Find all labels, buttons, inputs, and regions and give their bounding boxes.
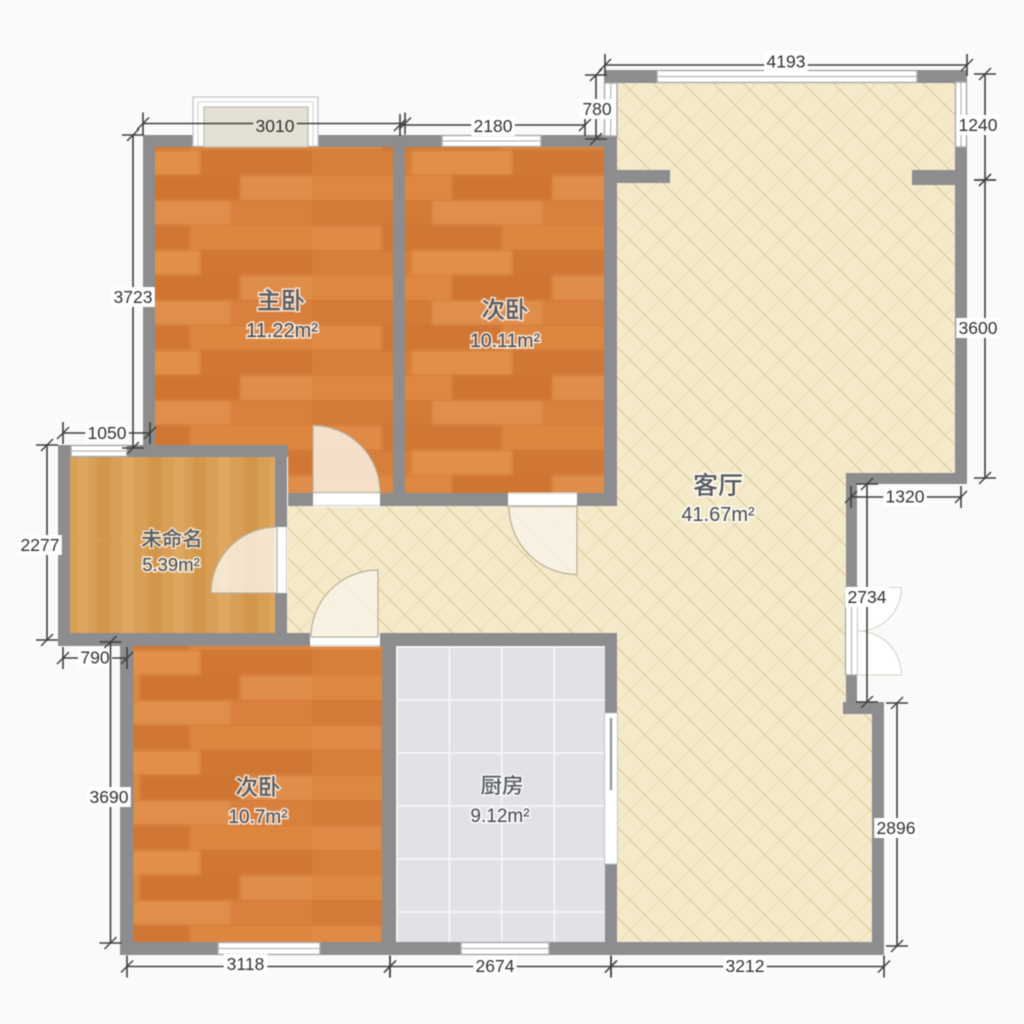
- svg-text:2277: 2277: [21, 535, 60, 555]
- svg-text:790: 790: [80, 648, 109, 668]
- svg-text:4193: 4193: [767, 52, 806, 72]
- svg-text:3212: 3212: [726, 956, 765, 976]
- svg-text:9.12m²: 9.12m²: [470, 806, 529, 827]
- svg-text:780: 780: [582, 99, 611, 119]
- svg-text:11.22m²: 11.22m²: [246, 320, 318, 342]
- svg-text:3010: 3010: [256, 116, 295, 136]
- svg-text:2674: 2674: [476, 956, 515, 976]
- svg-text:3118: 3118: [227, 954, 265, 974]
- svg-text:1240: 1240: [959, 115, 998, 135]
- svg-text:1320: 1320: [886, 487, 925, 507]
- svg-text:2734: 2734: [848, 587, 887, 607]
- svg-text:5.39m²: 5.39m²: [142, 554, 200, 575]
- svg-text:1050: 1050: [88, 423, 127, 443]
- svg-text:10.7m²: 10.7m²: [228, 807, 287, 828]
- svg-text:41.67m²: 41.67m²: [681, 504, 755, 526]
- svg-text:3690: 3690: [90, 787, 129, 807]
- svg-text:2896: 2896: [877, 818, 916, 838]
- svg-text:10.11m²: 10.11m²: [470, 330, 541, 352]
- svg-text:3723: 3723: [114, 287, 153, 307]
- svg-text:3600: 3600: [959, 318, 998, 338]
- svg-text:2180: 2180: [474, 116, 513, 136]
